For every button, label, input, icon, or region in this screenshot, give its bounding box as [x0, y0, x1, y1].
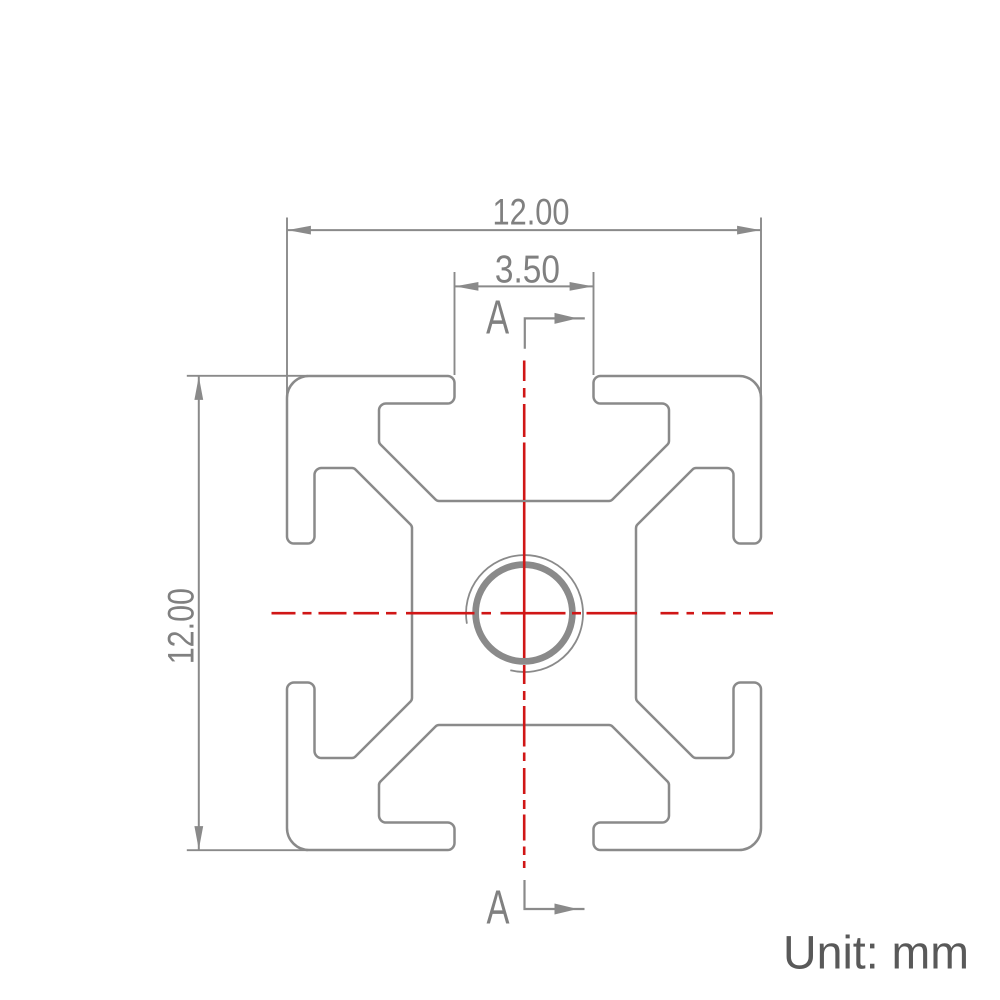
svg-text:A: A: [487, 882, 510, 935]
svg-text:A: A: [486, 292, 509, 345]
svg-text:12.00: 12.00: [493, 192, 570, 233]
svg-text:Unit: mm: Unit: mm: [783, 925, 969, 978]
svg-text:12.00: 12.00: [160, 588, 201, 664]
svg-text:3.50: 3.50: [495, 249, 560, 292]
